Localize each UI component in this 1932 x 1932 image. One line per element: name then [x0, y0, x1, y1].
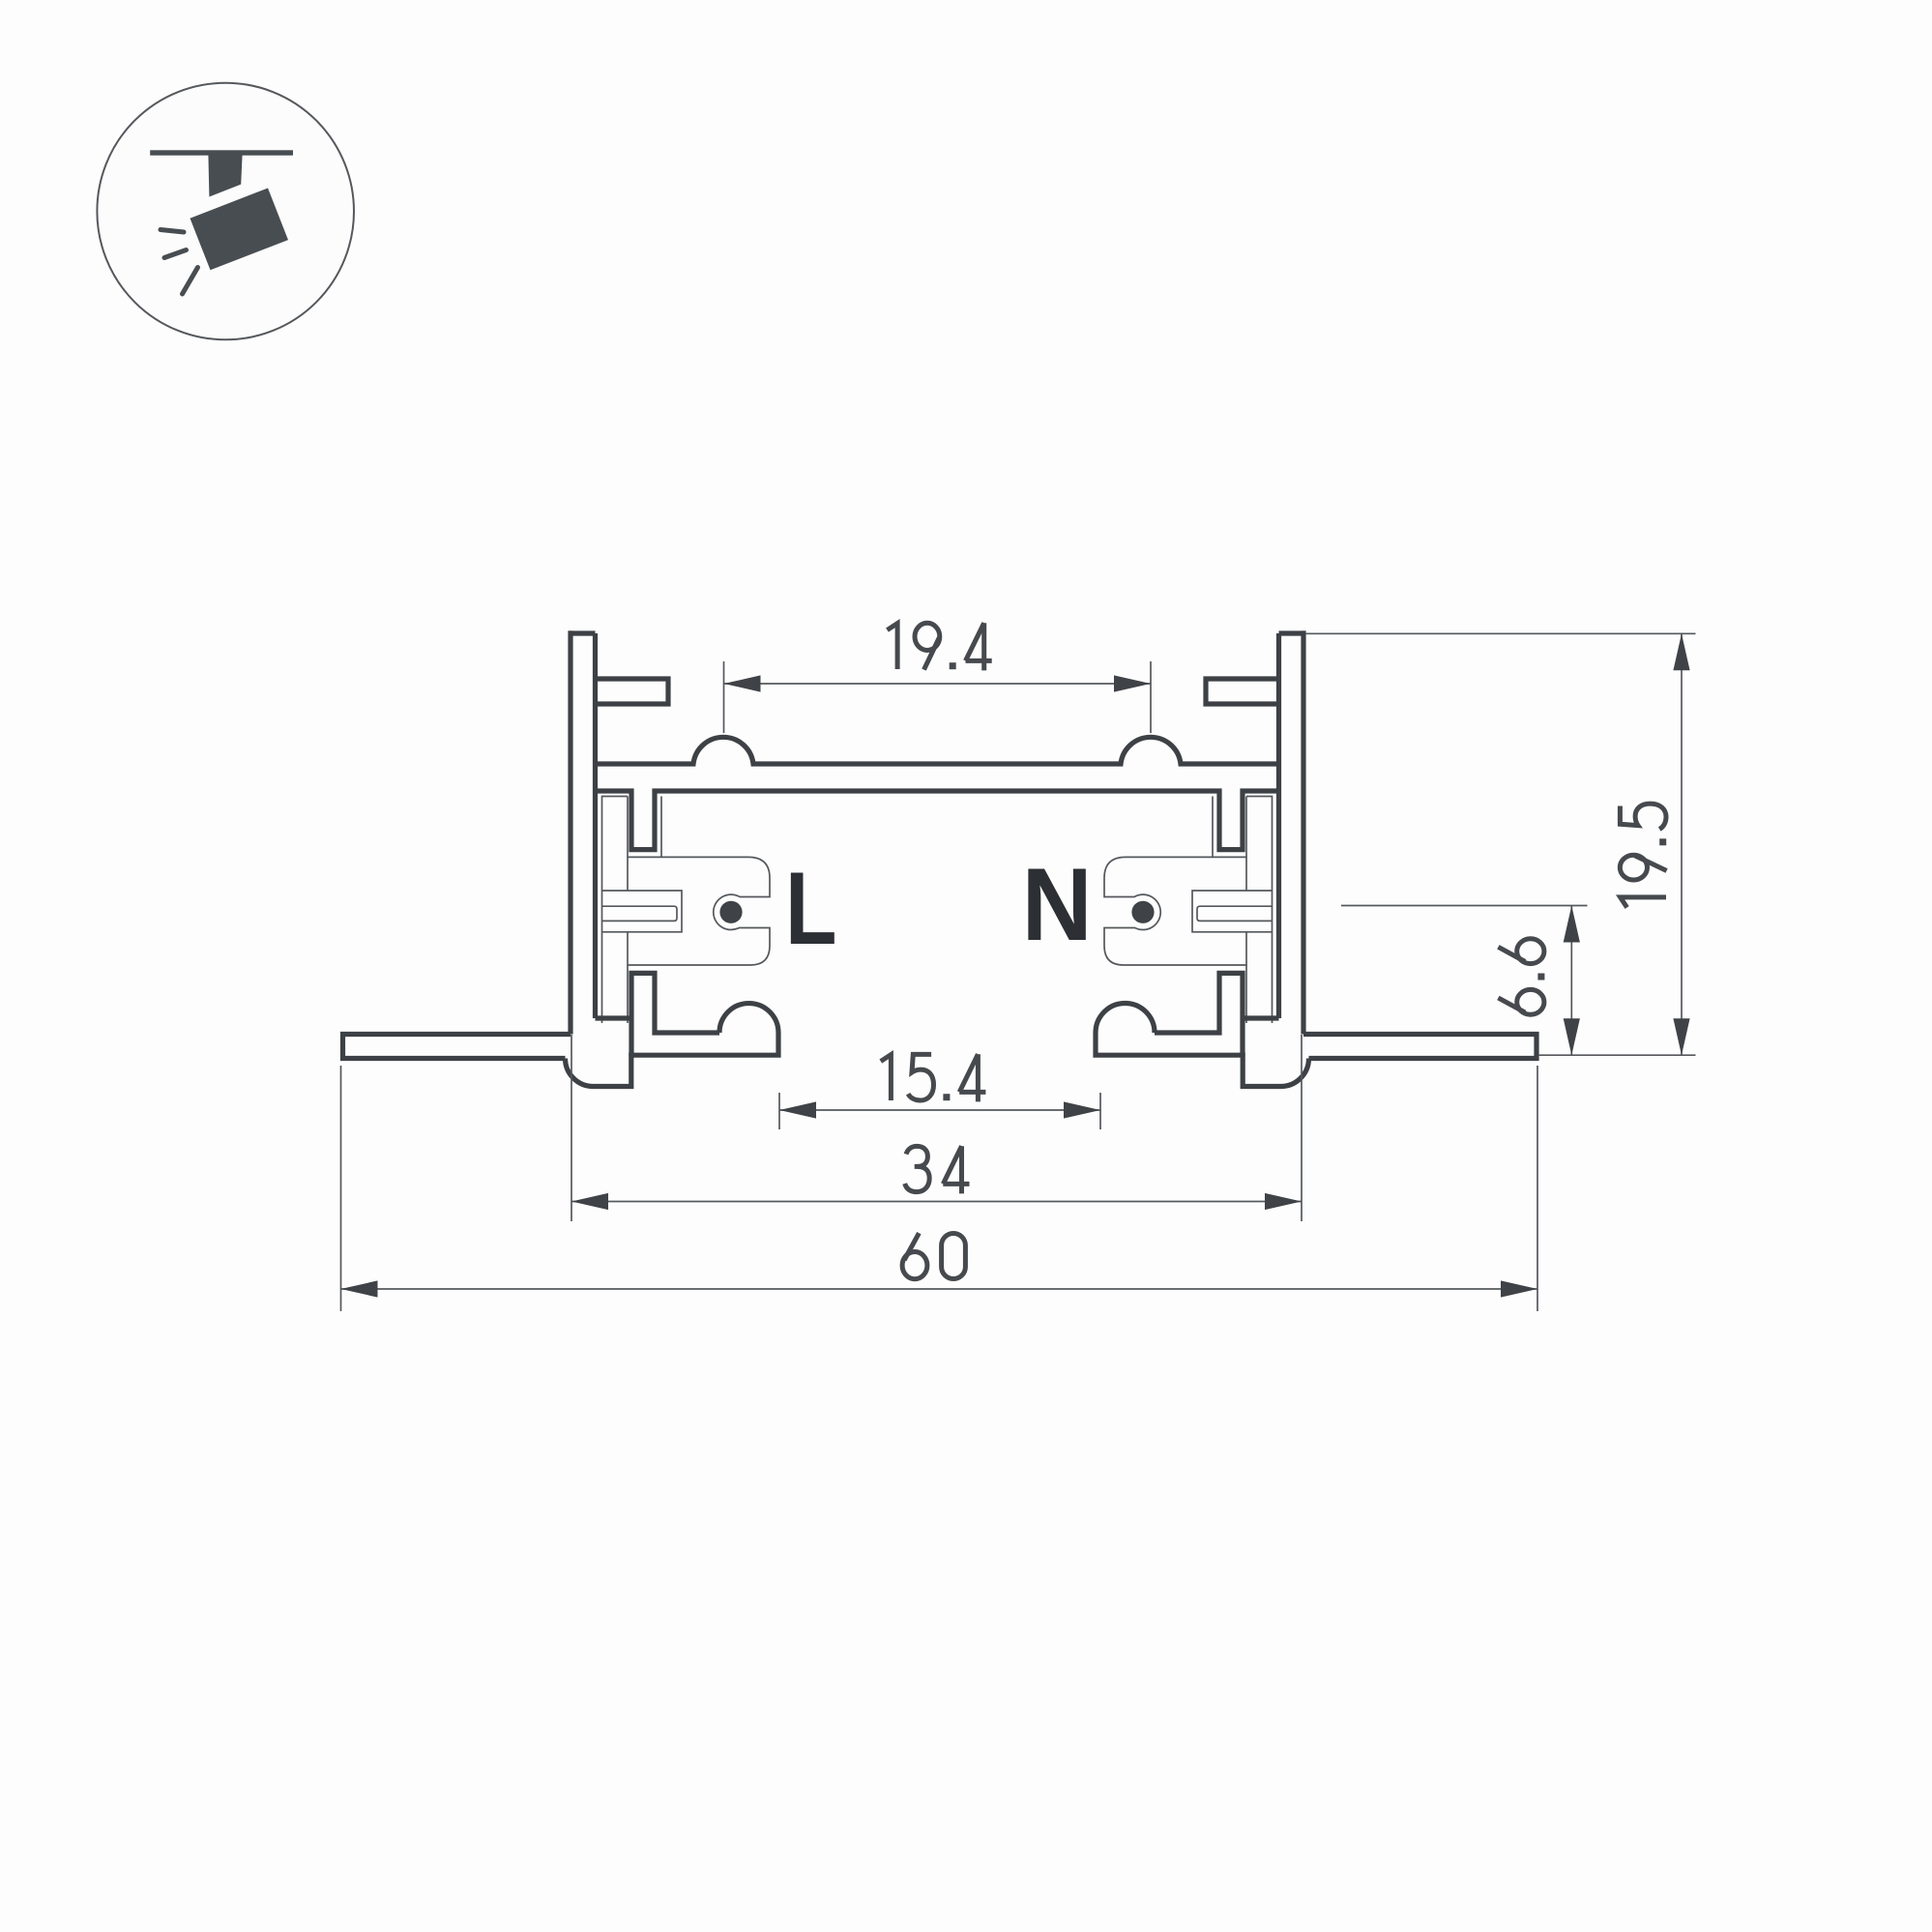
svg-text:L: L: [785, 850, 837, 966]
svg-text:N: N: [1022, 846, 1093, 962]
